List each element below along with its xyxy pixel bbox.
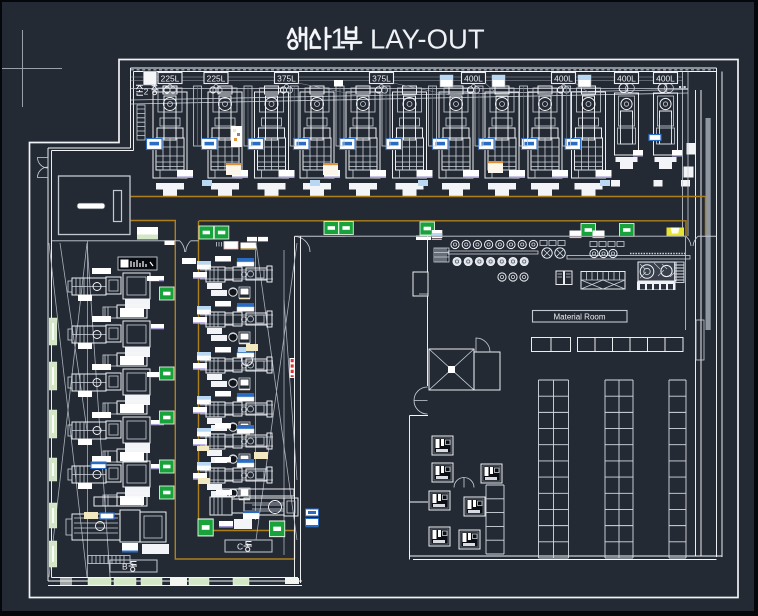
svg-text:400L: 400L bbox=[464, 73, 483, 83]
svg-text:225L: 225L bbox=[207, 73, 226, 83]
svg-text:400L: 400L bbox=[656, 73, 675, 83]
svg-text:375L: 375L bbox=[277, 73, 296, 83]
svg-text:375L: 375L bbox=[372, 73, 391, 83]
svg-text:2: 2 bbox=[144, 87, 149, 96]
svg-text:B: B bbox=[122, 562, 128, 572]
svg-text:LAY-OUT: LAY-OUT bbox=[370, 24, 485, 55]
svg-text:400L: 400L bbox=[617, 73, 636, 83]
svg-text:225L: 225L bbox=[161, 73, 180, 83]
svg-text:400L: 400L bbox=[554, 73, 573, 83]
svg-text:1: 1 bbox=[331, 24, 347, 56]
svg-text:Material Room: Material Room bbox=[553, 313, 605, 322]
svg-text:C: C bbox=[237, 542, 243, 552]
